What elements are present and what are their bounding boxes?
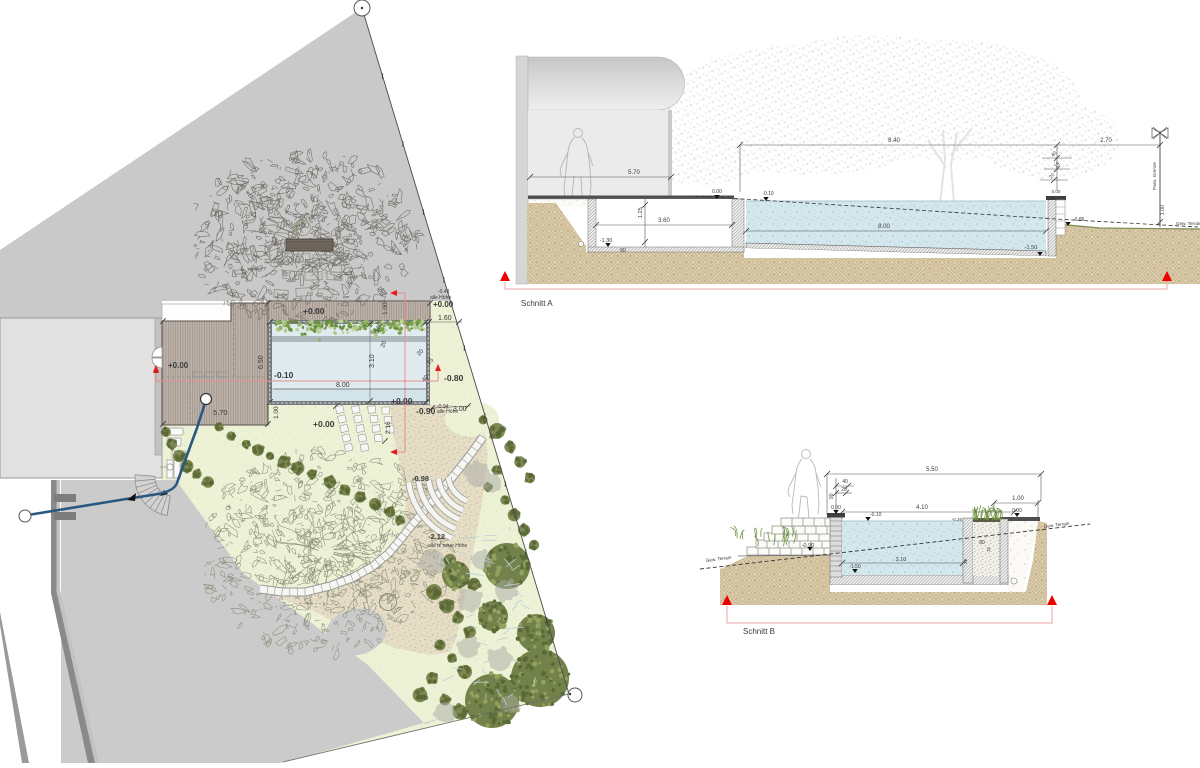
svg-text:1.25: 1.25 <box>638 207 644 218</box>
svg-text:8.00: 8.00 <box>878 224 890 230</box>
svg-text:Schnitt B: Schnitt B <box>743 627 775 636</box>
svg-text:+0.00: +0.00 <box>391 396 413 406</box>
svg-text:5.70: 5.70 <box>213 408 228 417</box>
svg-text:-0.90: -0.90 <box>802 543 815 549</box>
svg-text:3.10: 3.10 <box>896 557 907 563</box>
svg-text:+0.00: +0.00 <box>313 419 335 429</box>
svg-text:+0.00: +0.00 <box>433 300 454 309</box>
svg-text:60: 60 <box>620 248 626 254</box>
svg-text:3.10: 3.10 <box>369 354 376 368</box>
svg-text:+0.00: +0.00 <box>168 361 189 370</box>
svg-text:80: 80 <box>979 540 985 546</box>
svg-text:0.00: 0.00 <box>712 189 722 195</box>
svg-text:0.00: 0.00 <box>831 505 841 511</box>
svg-text:1.00: 1.00 <box>273 406 280 419</box>
svg-text:1.00: 1.00 <box>1012 496 1024 502</box>
svg-text:-0.90: -0.90 <box>416 406 436 416</box>
svg-text:-1.30: -1.30 <box>600 238 613 244</box>
svg-text:4.10: 4.10 <box>916 505 928 511</box>
svg-text:-0.10: -0.10 <box>870 512 882 518</box>
svg-text:Pass. Grenze: Pass. Grenze <box>1152 162 1157 190</box>
svg-text:15: 15 <box>986 546 991 552</box>
svg-text:Gew. Terrain: Gew. Terrain <box>1176 221 1200 226</box>
svg-text:90: 90 <box>829 493 835 499</box>
svg-text:-1.50: -1.50 <box>1025 245 1038 251</box>
svg-text:+0.00: +0.00 <box>303 306 325 316</box>
svg-text:5.50: 5.50 <box>926 467 938 473</box>
svg-text:3.00: 3.00 <box>453 406 467 413</box>
svg-text:-0.10: -0.10 <box>274 370 294 380</box>
svg-text:5.70: 5.70 <box>628 170 640 176</box>
svg-text:20: 20 <box>841 487 847 493</box>
svg-text:-0.80: -0.80 <box>444 373 464 383</box>
svg-text:1.00: 1.00 <box>382 302 389 315</box>
svg-text:-0.86: -0.86 <box>1073 217 1085 223</box>
svg-text:1.60: 1.60 <box>438 315 452 322</box>
svg-text:40: 40 <box>842 479 848 485</box>
svg-text:alle u. neue Höhe: alle u. neue Höhe <box>428 543 467 549</box>
svg-text:-2.12: -2.12 <box>428 532 445 541</box>
svg-text:-0.98: -0.98 <box>412 474 429 483</box>
svg-text:8.40: 8.40 <box>888 138 900 144</box>
svg-text:8.00: 8.00 <box>336 382 350 389</box>
svg-text:3.60: 3.60 <box>658 218 670 224</box>
svg-text:-0.26: -0.26 <box>952 517 963 522</box>
svg-text:alle Höhe: alle Höhe <box>430 295 451 301</box>
svg-text:20: 20 <box>963 558 968 564</box>
svg-text:Schnitt A: Schnitt A <box>521 299 553 308</box>
svg-text:1.00: 1.00 <box>1160 205 1166 215</box>
svg-text:2.16: 2.16 <box>385 421 392 434</box>
svg-text:6.50: 6.50 <box>258 355 265 369</box>
svg-text:2.70: 2.70 <box>1100 138 1112 144</box>
svg-text:-0.10: -0.10 <box>762 191 774 197</box>
svg-text:0.00: 0.00 <box>1052 189 1061 194</box>
svg-text:-1.50: -1.50 <box>849 564 861 570</box>
svg-text:0.00: 0.00 <box>1012 508 1022 514</box>
